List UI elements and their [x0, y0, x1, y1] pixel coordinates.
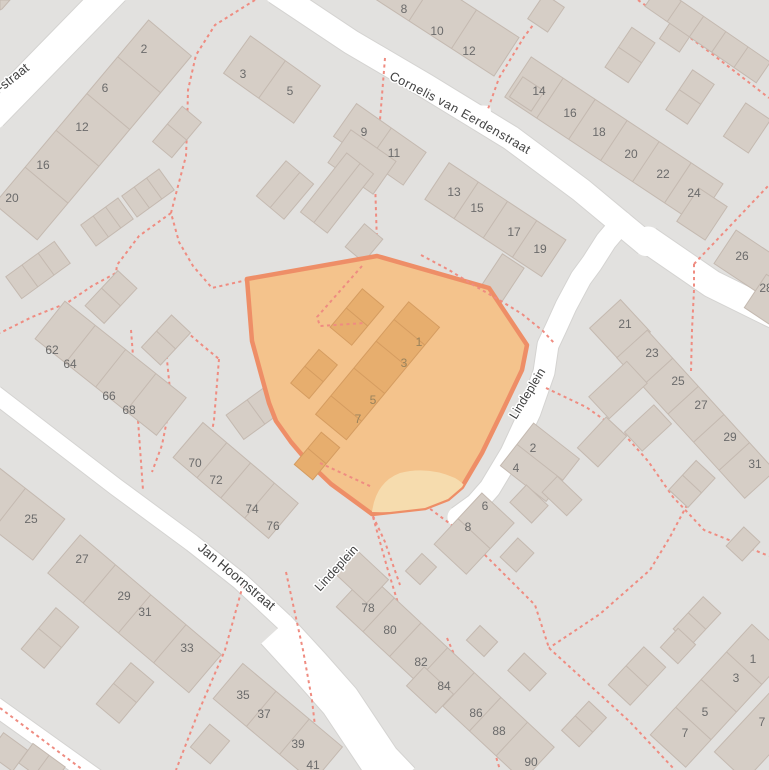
svg-text:64: 64	[63, 357, 77, 371]
svg-text:8: 8	[401, 2, 408, 16]
svg-text:10: 10	[430, 24, 444, 38]
svg-text:9: 9	[361, 125, 368, 139]
svg-text:33: 33	[180, 641, 194, 655]
svg-text:88: 88	[492, 724, 506, 738]
svg-text:19: 19	[533, 242, 547, 256]
svg-text:21: 21	[618, 317, 632, 331]
svg-text:90: 90	[524, 755, 538, 769]
svg-text:27: 27	[75, 552, 89, 566]
svg-text:24: 24	[687, 186, 701, 200]
svg-text:1: 1	[416, 335, 423, 349]
svg-text:5: 5	[702, 705, 709, 719]
svg-text:25: 25	[671, 374, 685, 388]
svg-text:29: 29	[723, 430, 737, 444]
svg-text:68: 68	[122, 403, 136, 417]
svg-text:62: 62	[45, 343, 59, 357]
svg-text:28: 28	[759, 281, 769, 295]
svg-text:7: 7	[759, 715, 766, 729]
svg-text:29: 29	[117, 589, 131, 603]
svg-text:7: 7	[682, 726, 689, 740]
svg-text:3: 3	[240, 67, 247, 81]
svg-text:26: 26	[735, 249, 749, 263]
svg-text:25: 25	[24, 512, 38, 526]
svg-text:41: 41	[306, 758, 320, 770]
svg-text:39: 39	[291, 737, 305, 751]
svg-text:84: 84	[437, 679, 451, 693]
svg-text:27: 27	[694, 398, 708, 412]
svg-text:86: 86	[469, 706, 483, 720]
svg-text:7: 7	[355, 412, 362, 426]
svg-text:16: 16	[36, 158, 50, 172]
svg-text:16: 16	[563, 106, 577, 120]
svg-text:76: 76	[266, 519, 280, 533]
svg-text:31: 31	[138, 605, 152, 619]
svg-text:14: 14	[532, 84, 546, 98]
svg-text:2: 2	[141, 42, 148, 56]
svg-text:3: 3	[733, 671, 740, 685]
svg-text:15: 15	[470, 201, 484, 215]
svg-text:3: 3	[401, 356, 408, 370]
svg-text:13: 13	[447, 185, 461, 199]
svg-text:74: 74	[245, 502, 259, 516]
svg-text:6: 6	[102, 81, 109, 95]
svg-text:6: 6	[482, 499, 489, 513]
svg-text:8: 8	[465, 520, 472, 534]
svg-text:20: 20	[624, 147, 638, 161]
svg-text:12: 12	[462, 44, 476, 58]
svg-text:66: 66	[102, 389, 116, 403]
svg-text:11: 11	[388, 146, 401, 160]
svg-text:5: 5	[370, 393, 377, 407]
svg-text:1: 1	[750, 652, 757, 666]
svg-text:2: 2	[530, 441, 537, 455]
svg-text:70: 70	[188, 456, 202, 470]
svg-text:37: 37	[257, 707, 271, 721]
svg-text:72: 72	[209, 473, 223, 487]
svg-text:23: 23	[645, 346, 659, 360]
svg-text:22: 22	[656, 167, 670, 181]
svg-text:18: 18	[592, 125, 606, 139]
svg-text:35: 35	[236, 688, 250, 702]
svg-text:82: 82	[414, 655, 428, 669]
svg-text:78: 78	[361, 601, 375, 615]
svg-text:17: 17	[507, 225, 521, 239]
svg-text:5: 5	[287, 84, 294, 98]
svg-text:80: 80	[383, 623, 397, 637]
svg-text:4: 4	[513, 461, 520, 475]
svg-text:20: 20	[5, 191, 19, 205]
svg-text:12: 12	[75, 120, 89, 134]
svg-text:31: 31	[748, 457, 762, 471]
